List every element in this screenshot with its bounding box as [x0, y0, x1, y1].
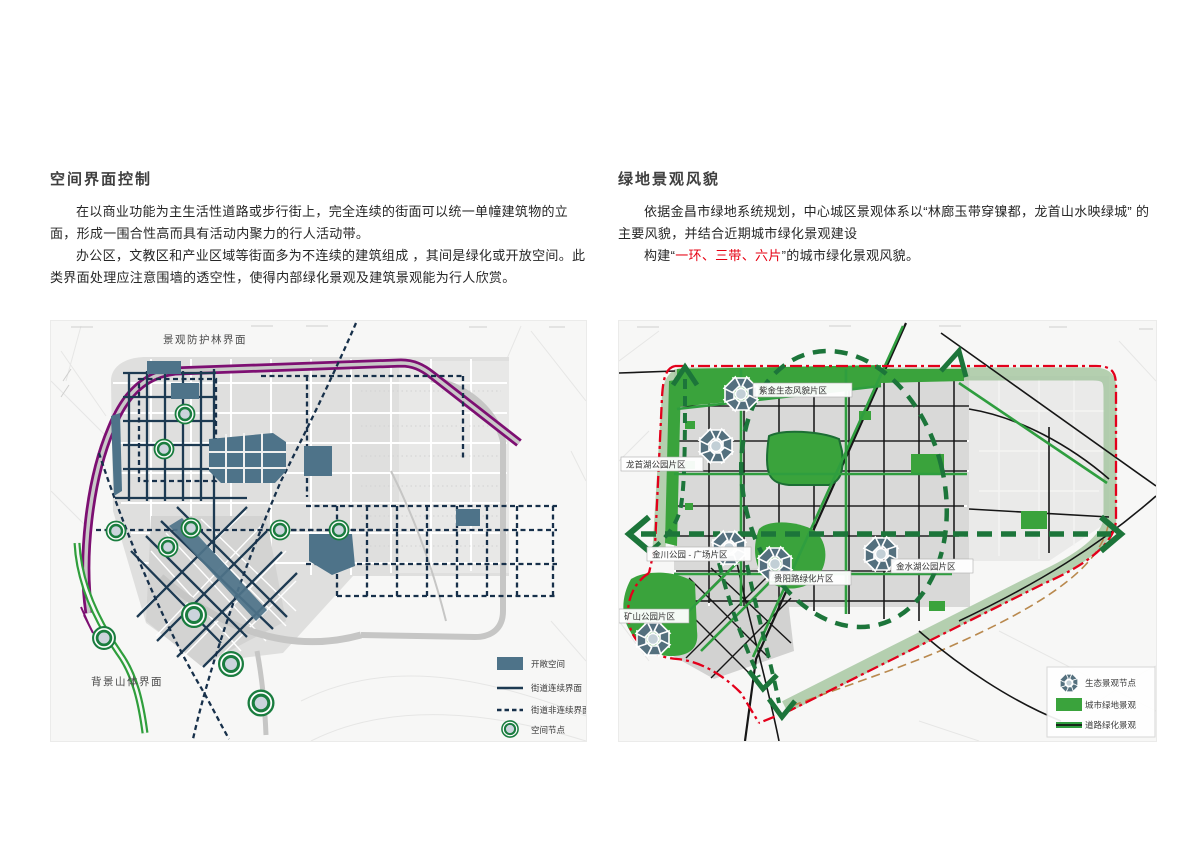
space-node-icon: [271, 521, 290, 540]
label-jinchuan: 金川公园 - 广场片区: [647, 547, 751, 561]
spatial-interface-map-svg: 景观防护林界面 背景山体界面 开敞空间 街道连续界面 街道非连续界面 空间节点: [51, 321, 586, 741]
legend-eco-node-icon: [1060, 674, 1079, 693]
legend-urban-green-swatch: [1056, 698, 1082, 711]
right-paragraph-1: 依据金昌市绿地系统规划，中心城区景观体系以“林廊玉带穿镍都，龙首山水映绿城” 的…: [618, 201, 1158, 245]
space-node-icon: [159, 538, 178, 557]
label-forest-interface: 景观防护林界面: [163, 333, 247, 346]
micro-road-annotations: [637, 326, 1153, 329]
left-paragraph-1: 在以商业功能为主生活性道路或步行街上，完全连续的街面可以统一单幢建筑物的立面，形…: [50, 201, 587, 245]
space-node-icon: [182, 519, 201, 538]
space-node-icon: [330, 521, 349, 540]
svg-text:金川公园 - 广场片区: 金川公园 - 广场片区: [652, 550, 728, 560]
legend-node-icon: [502, 721, 518, 737]
legend-road-green-label: 道路绿化景观: [1085, 720, 1137, 730]
legend-noncontinuous-label: 街道非连续界面: [531, 705, 586, 715]
space-node-icon: [107, 522, 126, 541]
svg-text:贵阳路绿化片区: 贵阳路绿化片区: [774, 574, 834, 584]
spatial-interface-map: 景观防护林界面 背景山体界面 开敞空间 街道连续界面 街道非连续界面 空间节点: [50, 320, 587, 742]
para2-suffix: ”的城市绿化景观风貌。: [782, 248, 920, 263]
legend-eco-node-label: 生态景观节点: [1085, 678, 1137, 688]
legend-open-space-swatch: [497, 657, 523, 670]
svg-text:龙首湖公园片区: 龙首湖公园片区: [626, 460, 686, 470]
para2-prefix: 构建“: [644, 248, 675, 263]
space-node-icon: [219, 652, 243, 676]
space-node-icon: [249, 691, 274, 716]
para2-red-highlight: 一环、三带、六片: [675, 248, 781, 263]
right-paragraph-2: 构建“一环、三带、六片”的城市绿化景观风貌。: [618, 245, 1158, 267]
label-kuangshan: 矿山公园片区: [619, 609, 689, 623]
legend-open-space-label: 开敞空间: [531, 659, 565, 669]
green-landscape-map-svg: 紫金生态风貌片区 龙首湖公园片区 金川公园 - 广场片区 贵阳路绿化片区 金水湖…: [619, 321, 1156, 741]
right-section: 绿地景观风貌 依据金昌市绿地系统规划，中心城区景观体系以“林廊玉带穿镍都，龙首山…: [618, 168, 1158, 267]
label-mountain-interface: 背景山体界面: [91, 675, 163, 688]
legend-urban-green-label: 城市绿地景观: [1085, 700, 1137, 710]
svg-text:金水湖公园片区: 金水湖公园片区: [896, 562, 956, 572]
space-node-icon: [176, 405, 195, 424]
label-guiyang: 贵阳路绿化片区: [769, 571, 851, 585]
svg-text:矿山公园片区: 矿山公园片区: [624, 612, 676, 622]
left-section-title: 空间界面控制: [50, 168, 587, 189]
space-node-icon: [155, 440, 174, 459]
legend-node-label: 空间节点: [531, 725, 566, 735]
label-longshou: 龙首湖公园片区: [621, 457, 703, 471]
city-blocks: [111, 357, 509, 666]
legend-continuous-label: 街道连续界面: [531, 683, 583, 693]
right-map-legend: 生态景观节点 城市绿地景观 道路绿化景观: [1047, 667, 1155, 737]
label-zijin: 紫金生态风貌片区: [753, 383, 852, 397]
space-node-icon: [93, 627, 115, 649]
planning-report-page: 空间界面控制 在以商业功能为主生活性道路或步行街上，完全连续的街面可以统一单幢建…: [0, 0, 1200, 849]
left-section: 空间界面控制 在以商业功能为主生活性道路或步行街上，完全连续的街面可以统一单幢建…: [50, 168, 587, 289]
right-section-title: 绿地景观风貌: [618, 168, 1158, 189]
green-landscape-map: 紫金生态风貌片区 龙首湖公园片区 金川公园 - 广场片区 贵阳路绿化片区 金水湖…: [618, 320, 1157, 742]
left-paragraph-2: 办公区，文教区和产业区域等街面多为不连续的建筑组成 ，其间是绿化或开放空间。此类…: [50, 245, 587, 289]
label-jinshui: 金水湖公园片区: [891, 559, 973, 573]
left-map-legend: 开敞空间 街道连续界面 街道非连续界面 空间节点: [497, 657, 586, 737]
svg-text:紫金生态风貌片区: 紫金生态风貌片区: [759, 386, 828, 396]
space-node-icon: [182, 603, 206, 627]
